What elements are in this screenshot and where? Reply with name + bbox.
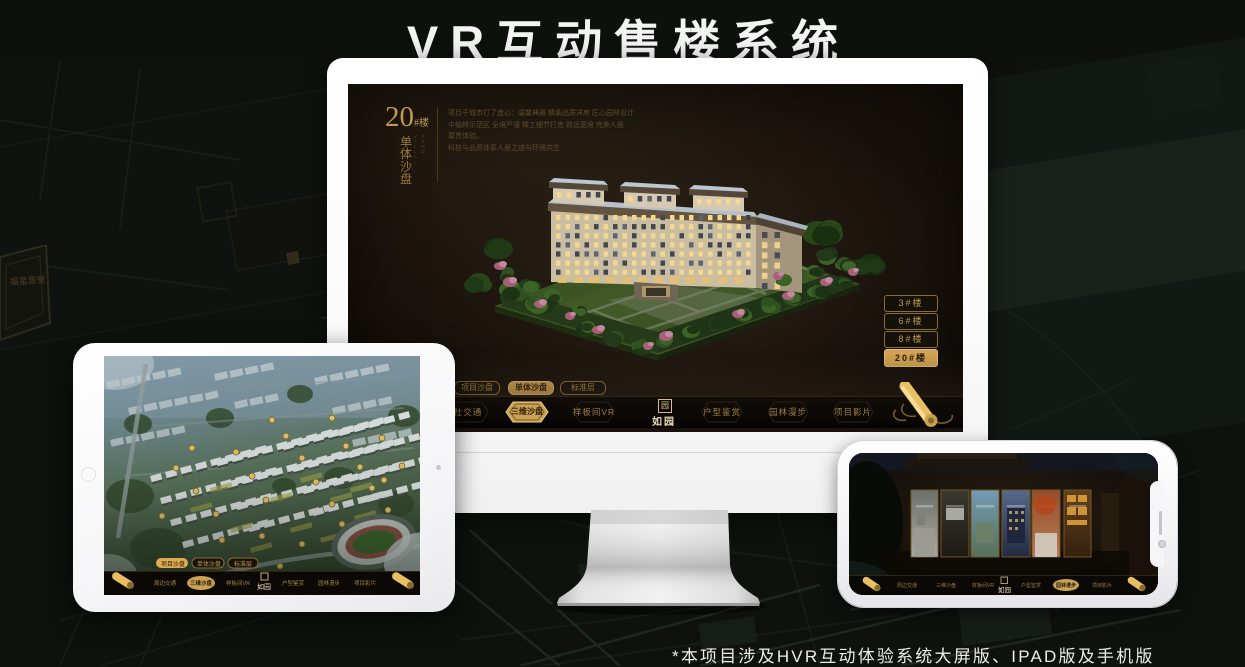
- svg-text:三维沙盘: 三维沙盘: [936, 582, 956, 589]
- svg-text:周边交通: 周边交通: [897, 582, 917, 589]
- svg-text:如园: 如园: [998, 585, 1011, 594]
- svg-text:园林漫步: 园林漫步: [318, 579, 341, 587]
- svg-text:三维沙盘: 三维沙盘: [190, 579, 213, 587]
- svg-text:项目影片: 项目影片: [1092, 582, 1112, 589]
- svg-text:户型鉴赏: 户型鉴赏: [1021, 582, 1041, 589]
- svg-text:园林漫步: 园林漫步: [1056, 582, 1076, 589]
- svg-text:项目沙盘: 项目沙盘: [161, 560, 185, 568]
- svg-text:样板间VR: 样板间VR: [226, 579, 250, 587]
- svg-text:周边交通: 周边交通: [154, 579, 177, 587]
- svg-text:标准层: 标准层: [234, 560, 252, 568]
- svg-text:单体沙盘: 单体沙盘: [197, 560, 221, 568]
- svg-text:户型鉴赏: 户型鉴赏: [282, 579, 305, 587]
- svg-text:项目影片: 项目影片: [354, 579, 376, 587]
- svg-text:如园: 如园: [257, 582, 271, 591]
- svg-text:样板间VR: 样板间VR: [972, 582, 994, 589]
